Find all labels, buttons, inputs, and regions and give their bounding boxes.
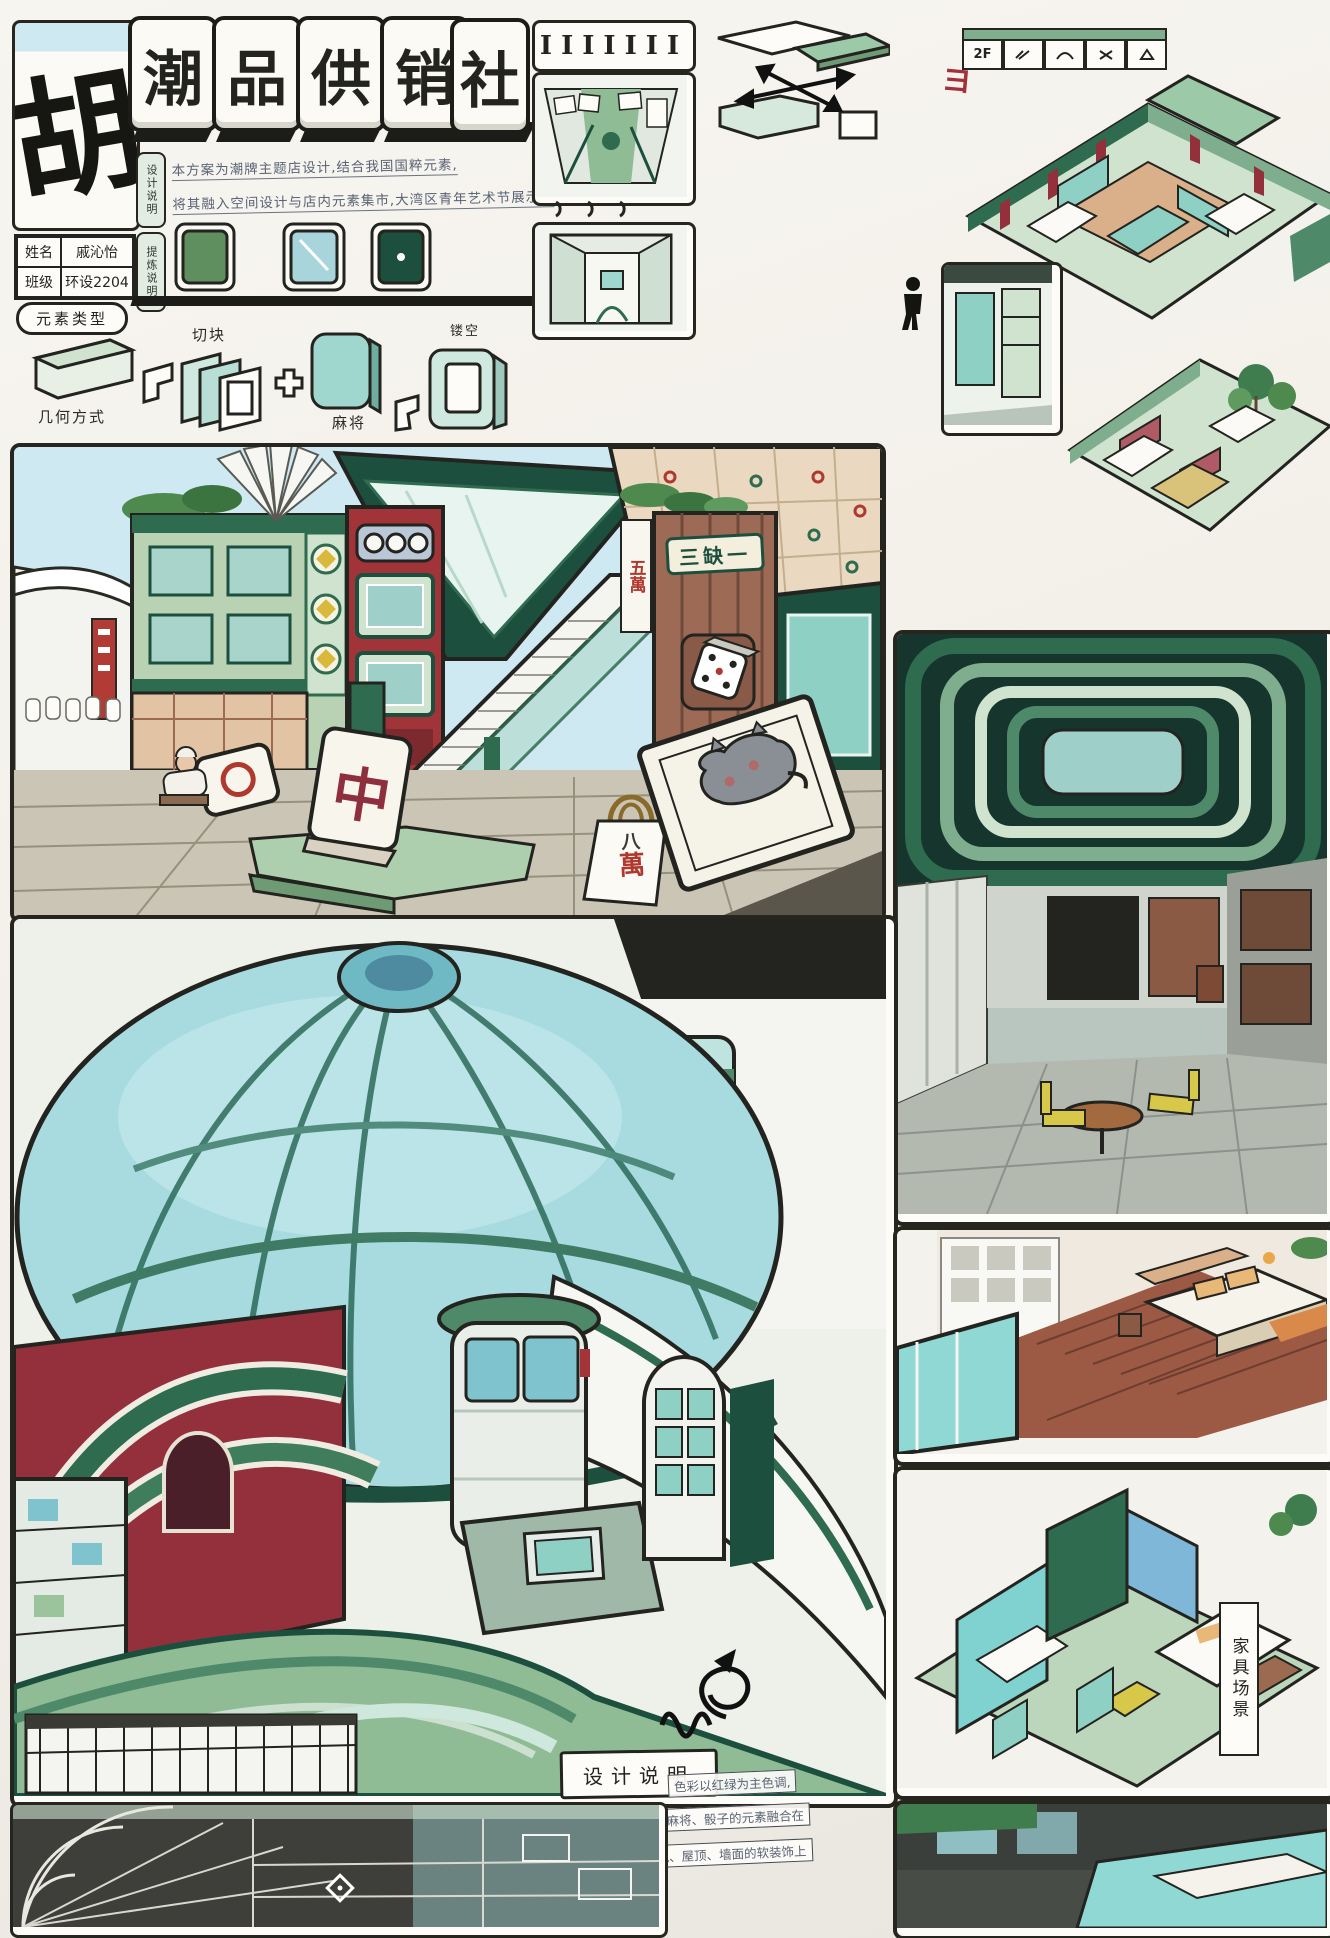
bamboo-marks: IIIIIII	[540, 31, 688, 61]
floorplan-garden	[1060, 330, 1330, 542]
dark-room-panel	[893, 1800, 1330, 1938]
geometry-label: 几何方式	[38, 406, 106, 427]
logo-character: 胡	[12, 22, 140, 229]
ceiling-interior-panel	[893, 630, 1330, 1226]
class-value: 环设2204	[61, 267, 133, 297]
floor-legend: 2F	[962, 28, 1167, 70]
bedroom-axon-panel	[893, 1226, 1330, 1466]
furniture-scene-label: 家具场景	[1219, 1602, 1259, 1756]
title-tile-2: 品	[212, 16, 302, 132]
intro-line-2: 将其融入空间设计与店内元素集市,大湾区青年艺术节展示。	[172, 189, 555, 215]
tab-design-note: 设计说明	[136, 152, 166, 228]
leaf-tile-icon	[183, 231, 227, 283]
pergola	[26, 1715, 356, 1793]
title-tile-3: 供	[296, 16, 386, 132]
hollow-tile-icon	[430, 350, 506, 428]
closet-sketch-panel	[941, 262, 1063, 436]
mahjong-tile-icon	[312, 334, 370, 408]
wuwan-sign: 五萬	[620, 519, 652, 633]
technical-plan-strip	[10, 1802, 668, 1938]
counter-block-icon	[720, 96, 818, 138]
shelf-bar	[130, 296, 569, 306]
person-icon	[896, 276, 930, 332]
hollow-label: 镂空	[450, 320, 480, 339]
logo-tile: 胡	[12, 20, 140, 231]
legend-green-bar	[962, 28, 1167, 39]
element-tiles	[150, 218, 440, 304]
intro-text: 本方案为潮牌主题店设计,结合我国国粹元素, 将其融入空间设计与店内元素集市,大湾…	[171, 146, 568, 222]
design-board: 胡 潮 品 供 销 社 设计说明 提炼说明 本方案为潮牌主题店设计,结合我国国粹…	[0, 0, 1330, 1938]
arrow-right-icon	[144, 364, 172, 402]
bag-text: 八 萬	[606, 832, 657, 898]
arch-window	[164, 1433, 232, 1531]
dome-hall-panel: 设计说明	[10, 915, 898, 1808]
cut-label: 切块	[192, 324, 226, 345]
zhong-tile-character: 中	[319, 738, 405, 844]
title-tile-5: 社	[450, 18, 530, 134]
bag-char-2: 萬	[618, 850, 646, 881]
info-table: 姓名 戚沁怡 班级 环设2204	[14, 234, 136, 300]
title-tile-1: 潮	[128, 16, 218, 132]
storefront-scene-panel: 三缺一 五萬 中 八 萬	[10, 443, 886, 923]
sanquyi-sign: 三缺一	[665, 532, 765, 575]
process-diagram: 几何方式 切块 麻将 镂空	[14, 306, 566, 446]
sketch-topdown-panel	[532, 72, 696, 206]
curl-marks-icon	[548, 200, 648, 218]
mahjong-label: 麻将	[332, 412, 366, 433]
coin-icons	[312, 545, 340, 673]
plus-icon	[276, 370, 302, 396]
arrow-down-right-icon	[396, 396, 418, 430]
cut-blocks-icon	[182, 354, 260, 430]
class-label: 班级	[17, 267, 61, 297]
intro-line-1: 本方案为潮牌主题店设计,结合我国国粹元素,	[172, 157, 458, 181]
name-value: 戚沁怡	[61, 237, 133, 267]
bamboo-marks-panel: IIIIIII	[532, 20, 696, 72]
sketch-doorway-panel	[532, 222, 696, 340]
name-label: 姓名	[17, 237, 61, 267]
rooms-axon-panel: 家具场景	[893, 1466, 1330, 1800]
exploded-diagram	[700, 12, 890, 144]
